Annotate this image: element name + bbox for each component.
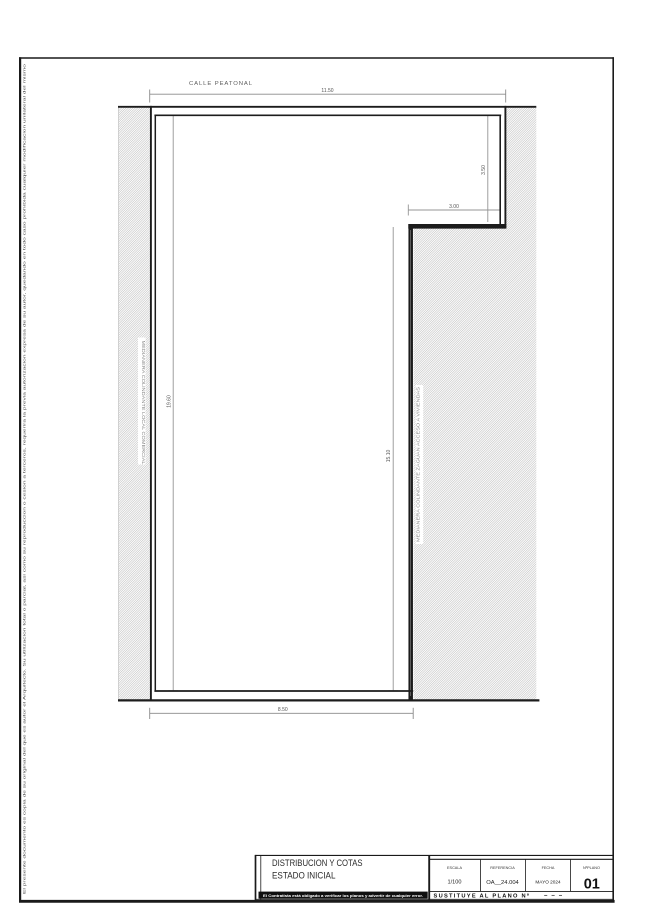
svg-text:MAYO 2024: MAYO 2024 — [535, 880, 561, 885]
svg-text:DISTRIBUCION Y COTAS: DISTRIBUCION Y COTAS — [272, 858, 363, 869]
svg-text:El presente documento es copia: El presente documento es copia de su ori… — [23, 64, 27, 894]
svg-text:FECHA: FECHA — [542, 866, 555, 870]
svg-text:01: 01 — [584, 877, 600, 893]
svg-text:OA__24.004: OA__24.004 — [486, 880, 519, 886]
svg-text:NºPLANO: NºPLANO — [583, 866, 600, 870]
svg-text:ESTADO INICIAL: ESTADO INICIAL — [272, 870, 336, 881]
svg-text:15.10: 15.10 — [386, 450, 392, 463]
svg-text:1/100: 1/100 — [448, 880, 462, 886]
svg-text:3.00: 3.00 — [449, 204, 459, 210]
svg-text:19.60: 19.60 — [166, 395, 172, 408]
svg-text:REFERENCIA: REFERENCIA — [490, 866, 515, 870]
svg-text:MEDIANERA COLINDANTE LOCAL: MEDIANERA COLINDANTE LOCAL COMERCIAL — [141, 341, 146, 466]
svg-text:ESCALA: ESCALA — [447, 866, 462, 870]
svg-text:– – –: – – – — [544, 892, 563, 899]
svg-text:El Contratista está obligado a: El Contratista está obligado a verificar… — [263, 894, 423, 898]
svg-text:CALLE PEATONAL: CALLE PEATONAL — [189, 81, 253, 87]
svg-text:SUSTITUYE AL PLANO Nº: SUSTITUYE AL PLANO Nº — [434, 893, 530, 899]
svg-text:MEDIANERA COLINDANTE ZAGUAN: MEDIANERA COLINDANTE ZAGUAN ACCESO A VIV… — [416, 387, 421, 542]
svg-text:11.50: 11.50 — [321, 88, 333, 94]
svg-text:8.50: 8.50 — [278, 707, 288, 713]
svg-text:3.50: 3.50 — [481, 165, 487, 175]
